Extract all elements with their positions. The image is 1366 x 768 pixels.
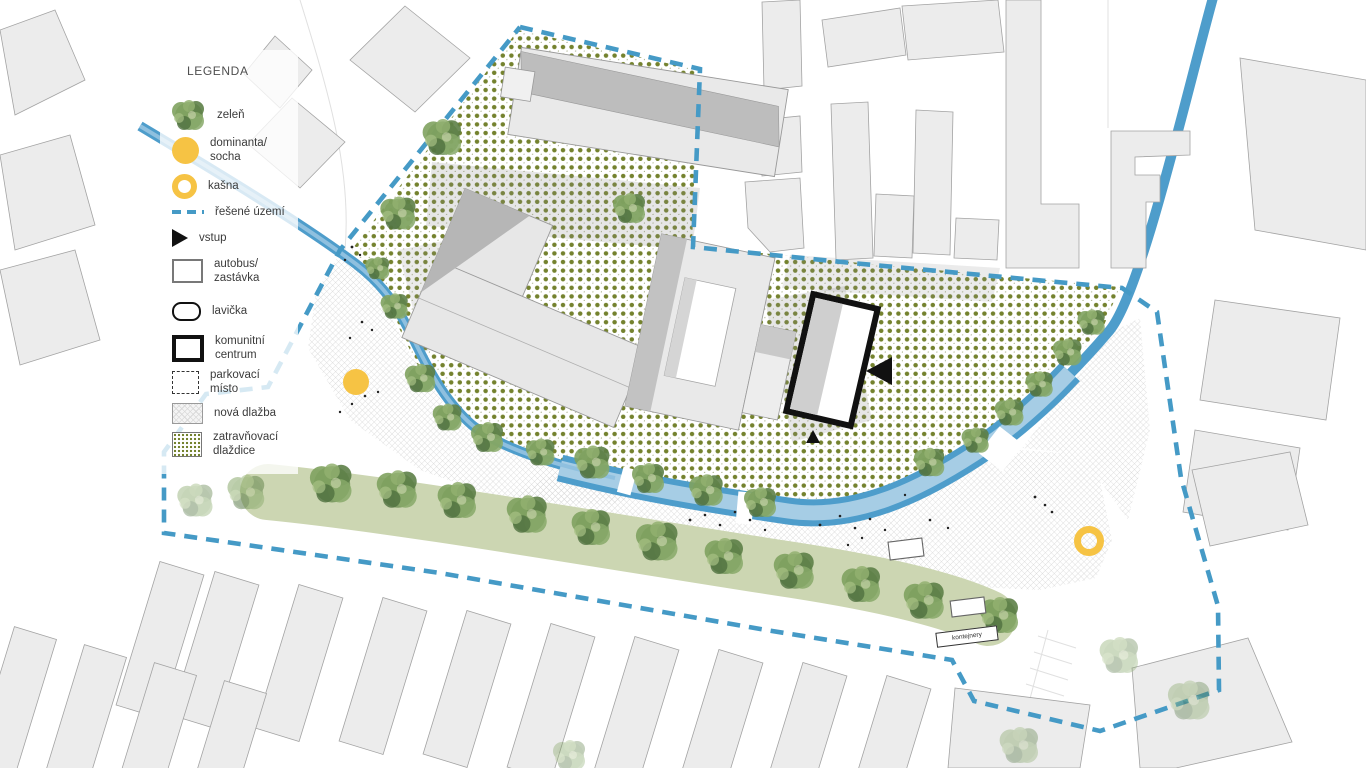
grass-tile-icon <box>172 432 202 457</box>
entrance-triangle-icon <box>172 229 188 247</box>
legend-item-bench: lavička <box>172 302 247 321</box>
legend-item-label: zeleň <box>217 108 245 122</box>
new-paving-icon <box>172 403 203 424</box>
statue-dot-icon <box>172 137 199 164</box>
legend-item-label: kašna <box>208 179 239 193</box>
bench-icon <box>172 302 201 321</box>
legend-item-label: autobus/ zastávka <box>214 257 259 286</box>
site-plan-page: LEGENDA zeleň dominanta/ socha kašna řeš… <box>0 0 1366 768</box>
legend-item-boundary: řešené území <box>172 205 285 219</box>
legend-item-label: vstup <box>199 231 227 245</box>
legend-item-label: dominanta/ socha <box>210 136 267 165</box>
bus-stop-icon <box>172 259 203 283</box>
community-center-icon <box>172 335 204 362</box>
legend-item-entrance: vstup <box>172 229 227 247</box>
legend-item-label: lavička <box>212 304 247 318</box>
statue-dot <box>343 369 369 395</box>
legend-item-bus-stop: autobus/ zastávka <box>172 257 259 286</box>
legend-item-new-paving: nová dlažba <box>172 403 276 424</box>
boundary-dash-icon <box>172 210 204 214</box>
legend-item-label: zatravňovací dlaždice <box>213 430 278 459</box>
legend-item-grass-tiles: zatravňovací dlaždice <box>172 430 278 459</box>
legend-item-fountain: kašna <box>172 174 239 199</box>
parking-spot-icon <box>172 371 199 394</box>
legend-item-label: řešené území <box>215 205 285 219</box>
tree-icon <box>172 98 206 132</box>
legend-item-community-center: komunitní centrum <box>172 334 265 363</box>
legend-item-parking: parkovací místo <box>172 368 260 397</box>
legend-item-label: nová dlažba <box>214 406 276 420</box>
fountain-ring-icon <box>172 174 197 199</box>
legend-item-greenery: zeleň <box>172 98 245 132</box>
legend-item-label: komunitní centrum <box>215 334 265 363</box>
legend-title: LEGENDA <box>187 64 249 78</box>
legend-panel: LEGENDA zeleň dominanta/ socha kašna řeš… <box>160 50 298 474</box>
legend-item-label: parkovací místo <box>210 368 260 397</box>
legend-item-statue: dominanta/ socha <box>172 136 267 165</box>
